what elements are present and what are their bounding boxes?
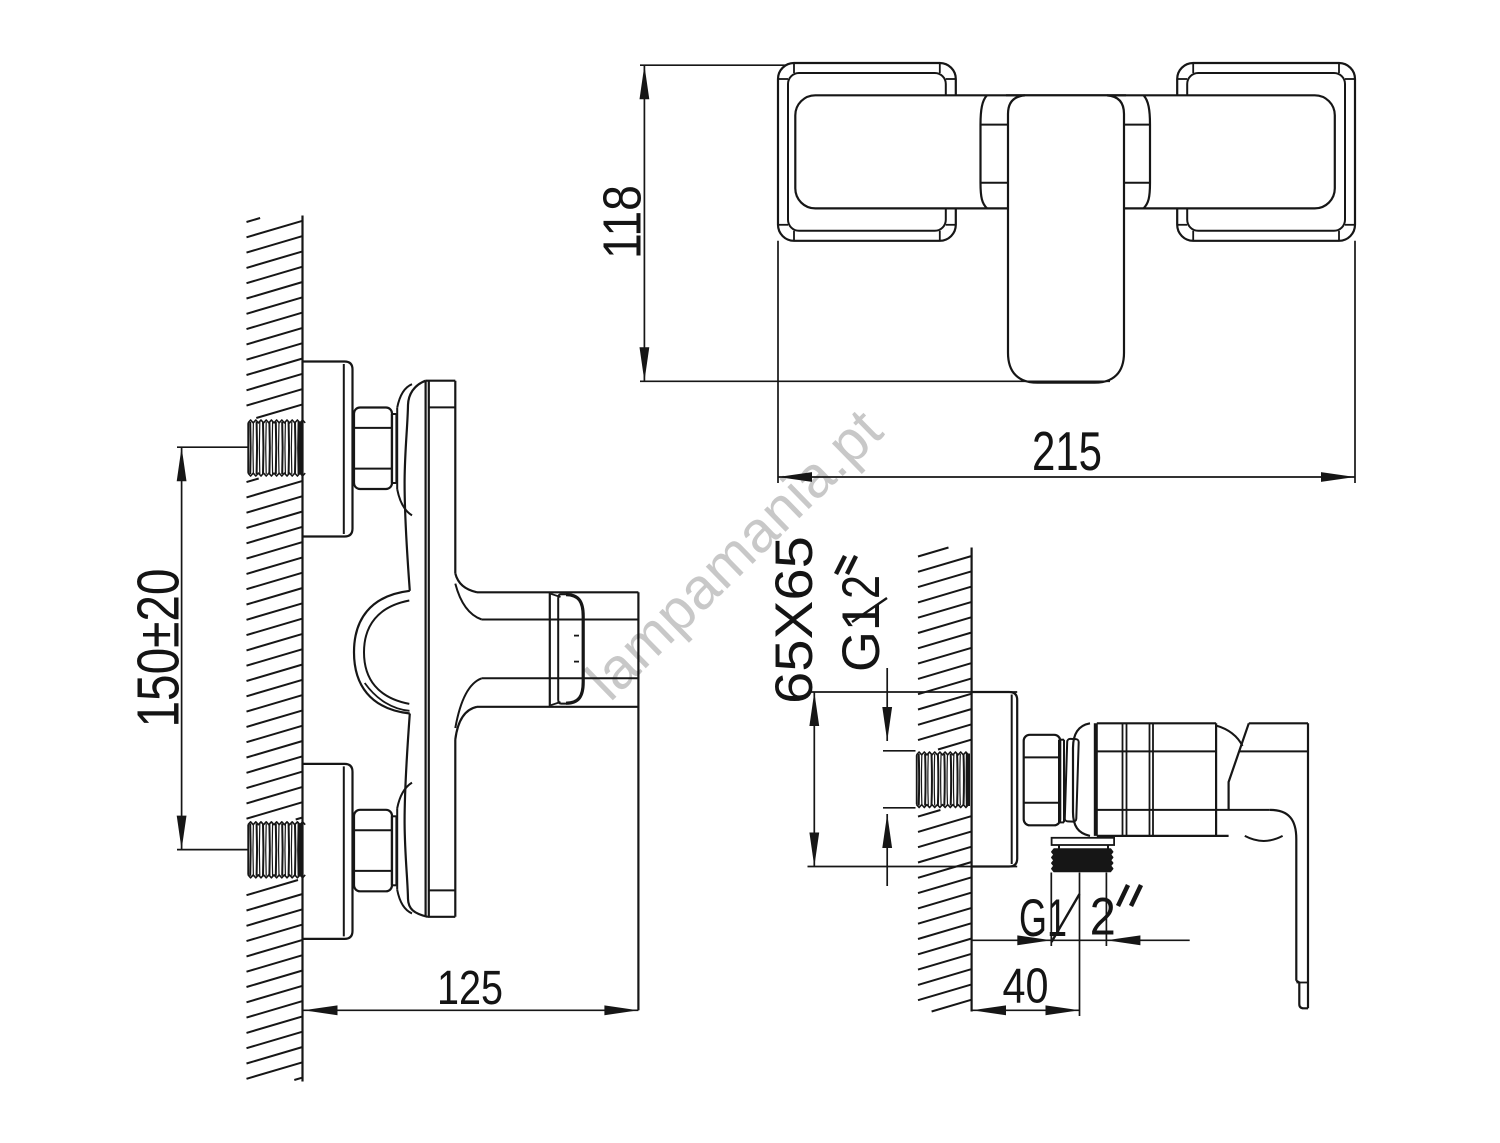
svg-text:65X65: 65X65 <box>765 536 824 704</box>
svg-text:125: 125 <box>437 962 503 1015</box>
svg-text:150±20: 150±20 <box>126 569 192 728</box>
svg-text:G1: G1 <box>832 602 891 672</box>
svg-text:G1: G1 <box>1019 889 1067 948</box>
svg-text:215: 215 <box>1032 420 1102 482</box>
svg-text:118: 118 <box>593 185 653 259</box>
svg-text:2: 2 <box>832 575 891 599</box>
svg-text:40: 40 <box>1003 960 1049 1014</box>
svg-text:2: 2 <box>1090 888 1116 947</box>
